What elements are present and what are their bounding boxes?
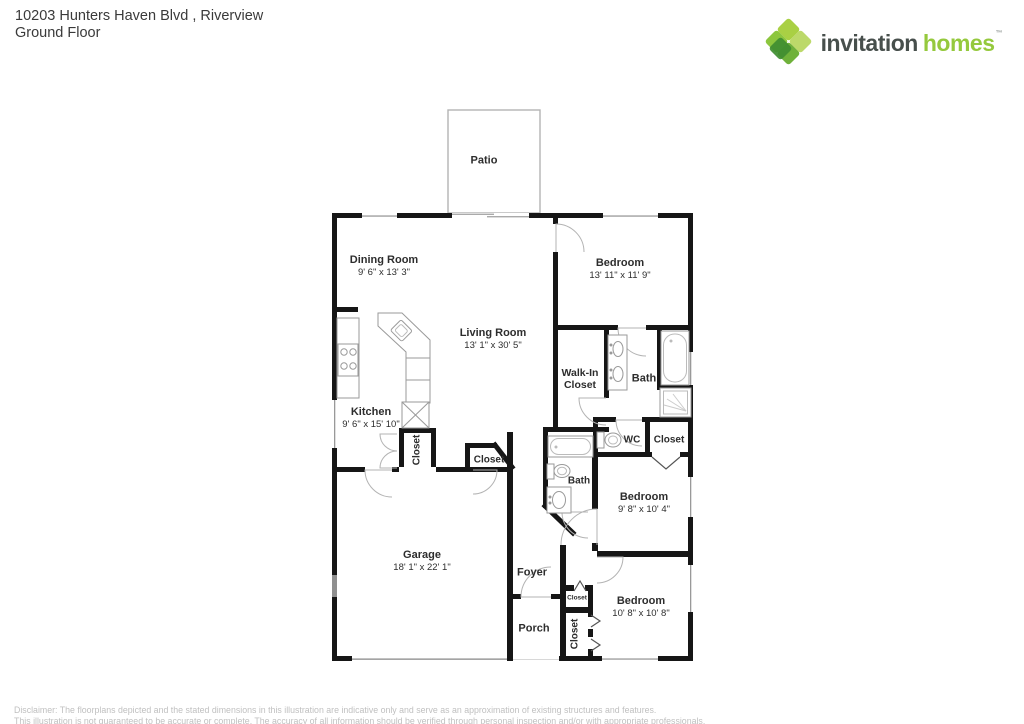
sliding-door-panel [452,214,494,215]
room-label-bedroom-2: Bedroom 9' 8" x 10' 4" [618,491,670,515]
porch-threshold [513,659,559,660]
shower-fixture [660,388,691,417]
room-label-closet-hall: Closet [654,434,685,446]
toilet-fixture-wc [597,432,621,448]
kitchen-closet-door-arc [380,451,397,468]
room-label-living-room: Living Room 13' 1" x 30' 5" [460,327,527,351]
floor-plan-page: 10203 Hunters Haven Blvd , Riverview Gro… [0,0,1024,724]
room-label-closet-small: Closet [567,594,587,601]
bedroom1-door-arc [556,224,584,252]
room-label-bedroom-1: Bedroom 13' 11" x 11' 9" [589,257,650,281]
pantry-unit [402,402,429,428]
room-label-wc: WC [624,434,641,446]
kitchen-closet-door-arc [380,434,397,451]
room-label-closet-garage: Closet [474,454,505,466]
room-label-bath-2: Bath [568,475,590,487]
bathtub-fixture-2 [548,436,593,457]
openings [332,213,559,661]
floor-plan-drawing [0,0,1024,724]
room-label-closet-bedroom-3: Closet [569,619,581,650]
bedroom3-door-arc [597,557,623,583]
disclaimer-line-2: This illustration is not guaranteed to b… [14,716,705,724]
room-label-closet-kitchen: Closet [411,435,423,466]
room-label-garage: Garage 18' 1" x 22' 1" [393,549,450,573]
garage-closet-door-arc [473,470,497,494]
toilet-fixture-bath2 [547,464,570,479]
room-label-bedroom-3: Bedroom 10' 8" x 10' 8" [612,595,669,619]
room-label-porch: Porch [518,623,549,636]
disclaimer-line-1: Disclaimer: The floorplans depicted and … [14,705,705,716]
disclaimer: Disclaimer: The floorplans depicted and … [14,705,705,724]
garage-entry-door-arc [365,470,392,497]
room-label-walk-in-closet: Walk-In Closet [550,367,610,391]
room-label-kitchen: Kitchen 9' 6" x 15' 10" [342,406,399,430]
vanity-double-sink-fixture [608,335,627,390]
sliding-door-panel [487,216,529,217]
room-label-bath-1: Bath [632,373,656,386]
garage-side-door [332,575,337,597]
room-label-patio: Patio [471,155,498,168]
stove-fixture [338,344,358,376]
bathtub-fixture [661,331,689,385]
room-label-dining-room: Dining Room 9' 6" x 13' 3" [350,254,418,278]
vanity-sink-fixture-bath2 [547,487,571,513]
garage-door [352,658,507,660]
room-label-foyer: Foyer [517,567,547,580]
